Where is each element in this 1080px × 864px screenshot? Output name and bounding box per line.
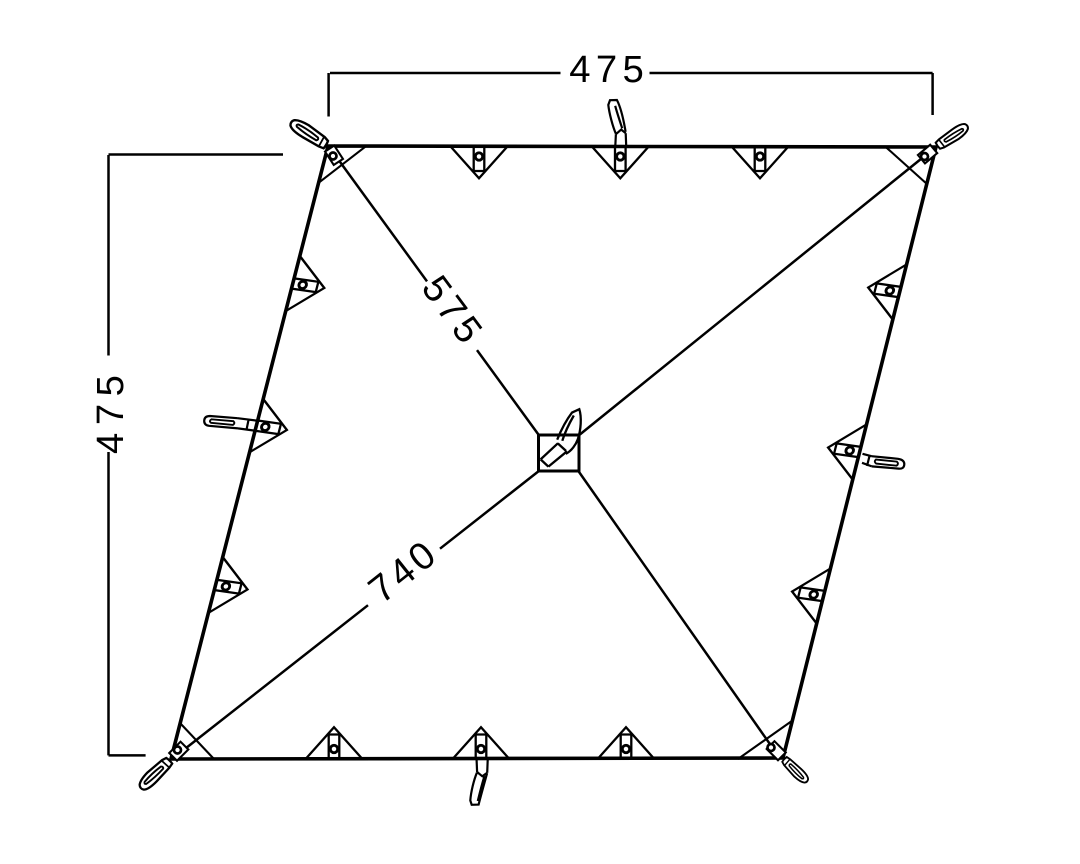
svg-text:475: 475 <box>89 375 132 454</box>
svg-text:475: 475 <box>569 48 644 91</box>
